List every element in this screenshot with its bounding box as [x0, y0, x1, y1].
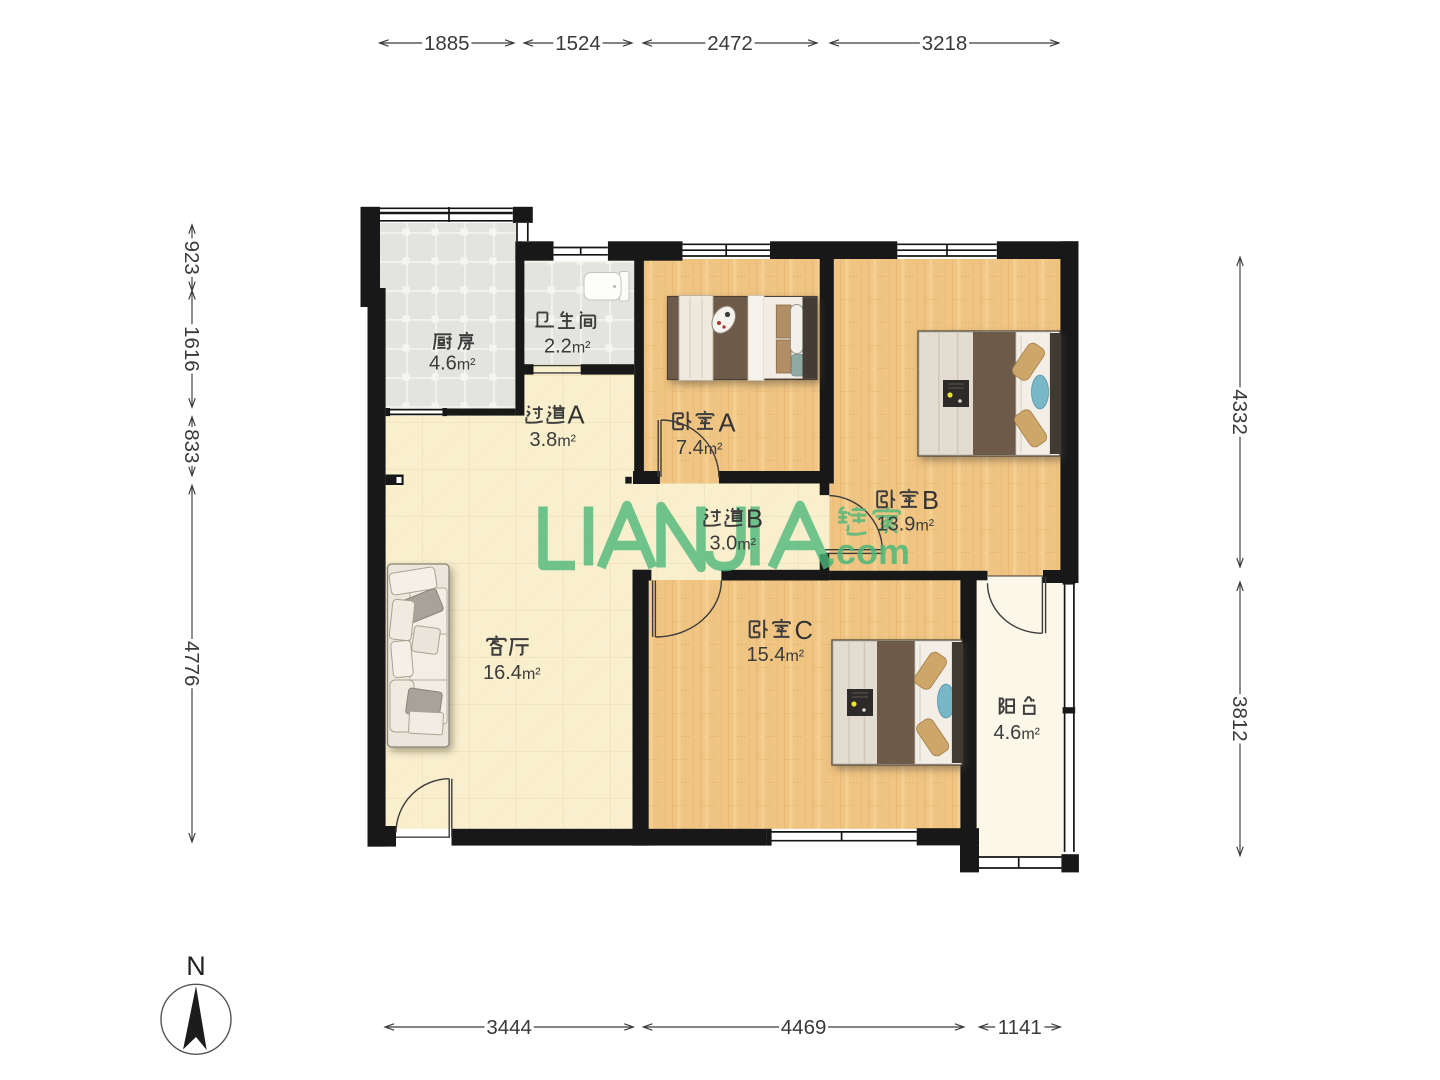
svg-text:923: 923: [180, 241, 203, 275]
svg-text:3218: 3218: [922, 32, 968, 55]
svg-text:2.2m²: 2.2m²: [544, 336, 591, 358]
svg-text:4.6m²: 4.6m²: [429, 353, 476, 375]
svg-text:3444: 3444: [486, 1016, 532, 1039]
svg-text:4776: 4776: [180, 641, 203, 687]
svg-text:1885: 1885: [424, 32, 470, 55]
svg-text:C: C: [795, 617, 813, 645]
svg-text:3812: 3812: [1228, 696, 1251, 742]
svg-text:7.4m²: 7.4m²: [676, 437, 723, 459]
svg-text:15.4m²: 15.4m²: [747, 644, 805, 666]
svg-text:1524: 1524: [555, 32, 601, 55]
svg-text:4332: 4332: [1228, 389, 1251, 435]
svg-text:13.9m²: 13.9m²: [877, 514, 935, 536]
svg-text:A: A: [568, 402, 585, 430]
svg-text:B: B: [746, 506, 763, 534]
svg-text:4.6m²: 4.6m²: [994, 722, 1041, 744]
svg-text:2472: 2472: [707, 32, 753, 55]
svg-text:1616: 1616: [180, 326, 203, 372]
svg-text:16.4m²: 16.4m²: [483, 662, 541, 684]
svg-text:833: 833: [180, 429, 203, 463]
svg-text:A: A: [719, 410, 736, 438]
svg-text:4469: 4469: [781, 1016, 827, 1039]
svg-text:B: B: [922, 487, 939, 515]
svg-text:3.8m²: 3.8m²: [530, 429, 577, 451]
svg-text:3.0m²: 3.0m²: [710, 533, 757, 555]
svg-text:.com: .com: [826, 531, 910, 572]
svg-text:N: N: [186, 951, 206, 981]
svg-text:1141: 1141: [998, 1016, 1042, 1039]
